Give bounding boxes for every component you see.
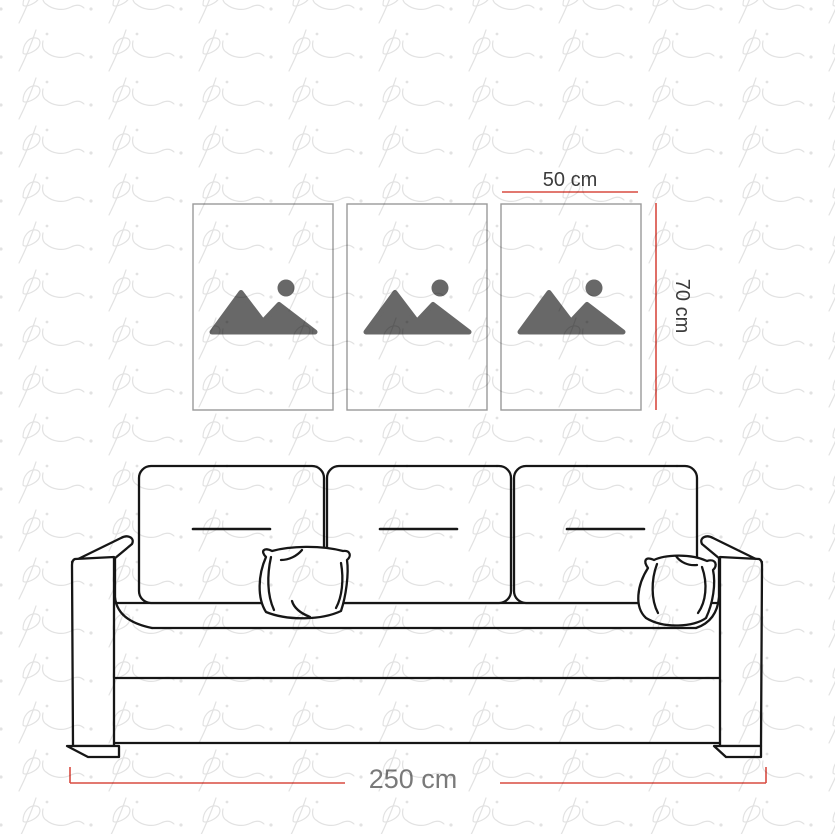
poster-size-diagram: 50 cm 70 cm bbox=[0, 0, 835, 834]
watermark-pattern-overlay bbox=[0, 0, 835, 834]
